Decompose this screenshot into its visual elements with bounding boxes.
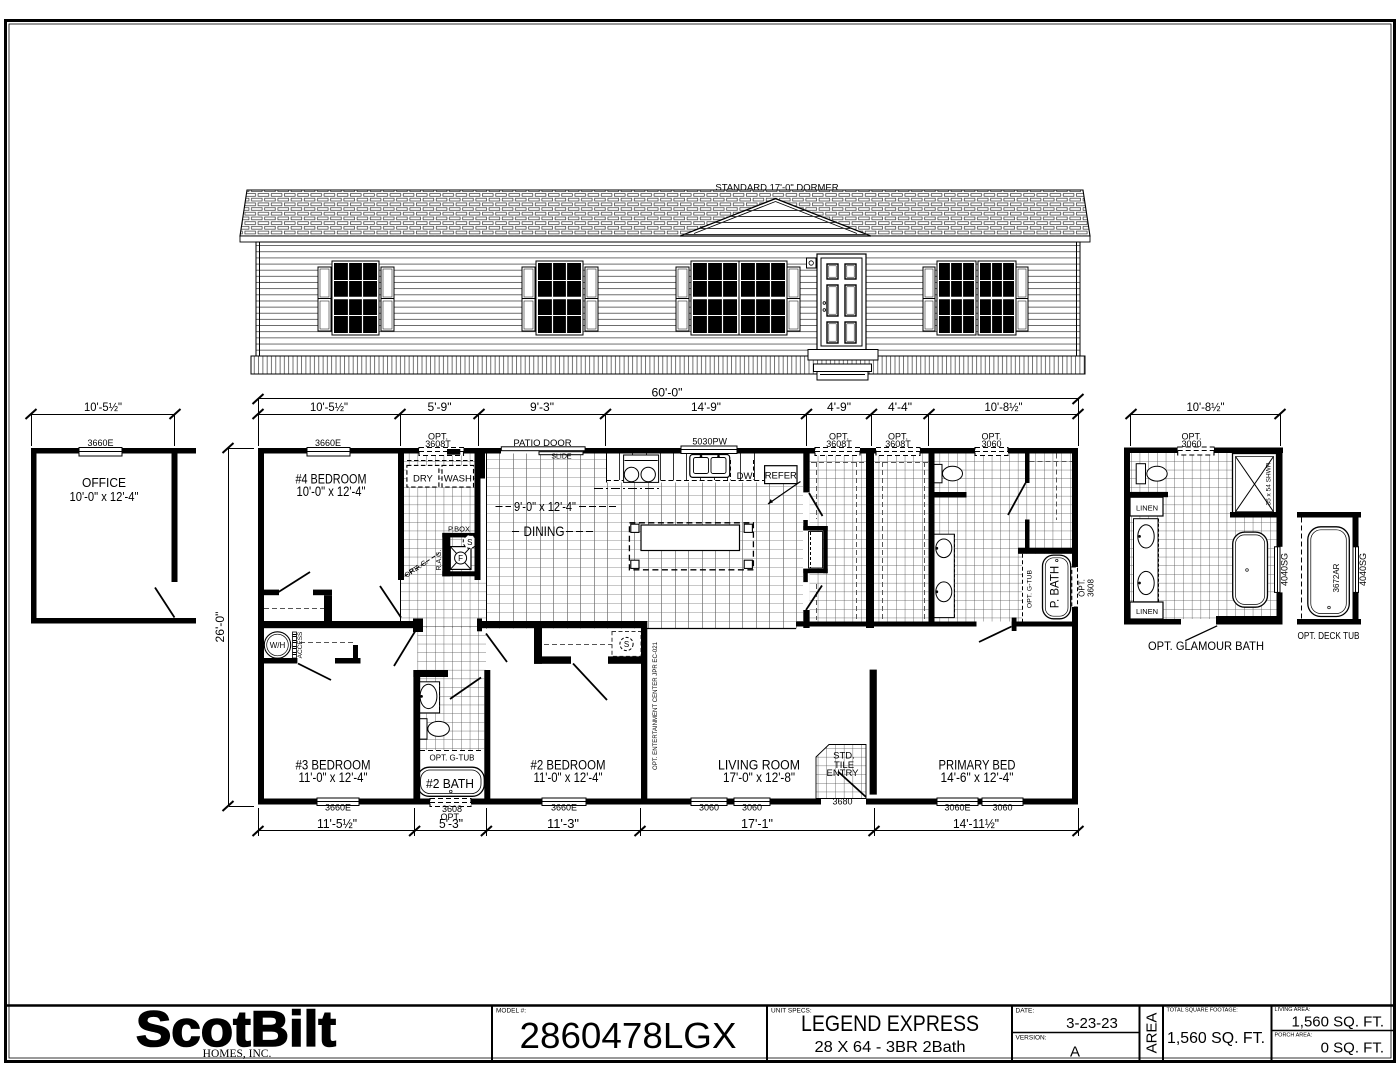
svg-text:ENTRY: ENTRY (826, 768, 859, 779)
svg-text:9'-0" x 12'-4": 9'-0" x 12'-4" (514, 499, 576, 514)
svg-text:LIVING AREA:: LIVING AREA: (1275, 1007, 1311, 1013)
svg-text:3672AR: 3672AR (1332, 563, 1341, 592)
svg-text:5030PW: 5030PW (692, 436, 727, 446)
svg-text:4'-9": 4'-9" (827, 400, 851, 414)
svg-text:HOMES, INC.: HOMES, INC. (203, 1048, 272, 1060)
svg-text:3060: 3060 (981, 439, 1001, 449)
svg-text:PORCH AREA:: PORCH AREA: (1275, 1033, 1313, 1039)
svg-text:5'-3": 5'-3" (439, 817, 463, 831)
svg-text:3060: 3060 (699, 803, 719, 813)
svg-text:10'-5½": 10'-5½" (84, 400, 122, 414)
svg-text:3608T: 3608T (425, 439, 451, 449)
svg-text:14'-11½": 14'-11½" (953, 817, 999, 831)
svg-text:SLIDE: SLIDE (551, 454, 572, 461)
svg-text:VERSION:: VERSION: (1016, 1035, 1047, 1042)
svg-text:3060: 3060 (742, 803, 762, 813)
svg-text:17'-1": 17'-1" (741, 817, 773, 831)
svg-text:3680: 3680 (832, 796, 852, 806)
svg-text:OFFICE: OFFICE (82, 475, 126, 490)
svg-text:11'-5½": 11'-5½" (317, 817, 357, 831)
svg-text:10'-8½": 10'-8½" (985, 400, 1023, 414)
svg-text:28 X 64 - 3BR 2Bath: 28 X 64 - 3BR 2Bath (815, 1039, 966, 1056)
svg-text:3608: 3608 (1087, 579, 1096, 597)
svg-text:17'-0" x 12'-8": 17'-0" x 12'-8" (723, 770, 795, 785)
svg-text:10'-0" x 12'-4": 10'-0" x 12'-4" (297, 484, 366, 499)
svg-text:A: A (1070, 1044, 1080, 1061)
svg-text:TOTAL SQUARE FOOTAGE:: TOTAL SQUARE FOOTAGE: (1167, 1008, 1239, 1014)
svg-text:LINEN: LINEN (1136, 504, 1158, 513)
svg-text:3060: 3060 (992, 803, 1012, 813)
svg-text:DW: DW (737, 471, 753, 482)
svg-text:MODEL #:: MODEL #: (496, 1008, 526, 1015)
svg-text:F: F (458, 554, 463, 563)
svg-text:LINEN: LINEN (1136, 607, 1158, 616)
svg-text:OPT. ENTERTAINMENT CENTER JPR: OPT. ENTERTAINMENT CENTER JPR EC-021 (652, 642, 659, 770)
svg-text:3660E: 3660E (87, 438, 113, 448)
svg-text:P. BATH: P. BATH (1050, 566, 1062, 608)
svg-text:11'-0" x 12'-4": 11'-0" x 12'-4" (534, 770, 603, 785)
svg-text:AREA: AREA (1144, 1013, 1161, 1054)
svg-text:5'-9": 5'-9" (428, 400, 452, 414)
svg-text:14'-9": 14'-9" (691, 400, 721, 414)
svg-text:3608T: 3608T (826, 439, 852, 449)
svg-text:LEGEND EXPRESS: LEGEND EXPRESS (801, 1011, 979, 1036)
svg-text:WASH: WASH (444, 474, 472, 485)
svg-text:DINING: DINING (524, 523, 565, 539)
svg-text:60'-0": 60'-0" (652, 386, 683, 400)
svg-text:OPT.: OPT. (1078, 579, 1087, 597)
svg-text:10'-8½": 10'-8½" (1187, 400, 1225, 414)
svg-text:3060E: 3060E (944, 803, 970, 813)
svg-text:OPT. G-TUB: OPT. G-TUB (1027, 569, 1034, 608)
svg-text:0 SQ. FT.: 0 SQ. FT. (1321, 1040, 1384, 1057)
svg-text:OPT. DECK TUB: OPT. DECK TUB (1298, 631, 1360, 642)
svg-text:3608T: 3608T (885, 439, 911, 449)
svg-text:DRY: DRY (413, 474, 434, 485)
svg-text:3060: 3060 (1181, 439, 1201, 449)
svg-text:4040SG: 4040SG (1280, 553, 1290, 586)
svg-text:S: S (624, 640, 629, 649)
svg-text:1,560 SQ. FT.: 1,560 SQ. FT. (1291, 1014, 1384, 1031)
svg-text:OPT. G-TUB: OPT. G-TUB (430, 754, 475, 763)
svg-text:10'-0" x 12'-4": 10'-0" x 12'-4" (70, 489, 139, 504)
svg-text:STANDARD 17'-0" DORMER: STANDARD 17'-0" DORMER (715, 183, 838, 194)
svg-text:3660E: 3660E (551, 803, 577, 813)
svg-text:9'-3": 9'-3" (530, 400, 554, 414)
svg-text:S: S (467, 538, 472, 547)
svg-text:3660E: 3660E (315, 438, 341, 448)
svg-text:R.A.G.: R.A.G. (436, 549, 443, 570)
svg-text:#2 BATH: #2 BATH (426, 777, 474, 791)
svg-text:3660E: 3660E (325, 803, 351, 813)
svg-text:PATIO DOOR: PATIO DOOR (513, 438, 571, 449)
svg-text:REFER: REFER (765, 471, 797, 482)
svg-text:W/H: W/H (270, 641, 286, 650)
svg-text:2860478LGX: 2860478LGX (520, 1015, 737, 1056)
svg-text:OPT. GLAMOUR BATH: OPT. GLAMOUR BATH (1148, 639, 1264, 653)
svg-text:4'-4": 4'-4" (888, 400, 912, 414)
svg-text:ACCESS: ACCESS (297, 631, 304, 658)
svg-text:4040SG: 4040SG (1358, 553, 1368, 586)
svg-text:10'-5½": 10'-5½" (310, 400, 348, 414)
svg-text:14'-6" x 12'-4": 14'-6" x 12'-4" (941, 770, 1014, 785)
svg-text:35 x 54 SHWR: 35 x 54 SHWR (1266, 462, 1273, 505)
svg-text:11'-0" x 12'-4": 11'-0" x 12'-4" (299, 770, 368, 785)
svg-text:3-23-23: 3-23-23 (1066, 1015, 1118, 1032)
svg-text:1,560 SQ. FT.: 1,560 SQ. FT. (1167, 1030, 1265, 1047)
svg-text:26'-0": 26'-0" (213, 612, 227, 643)
svg-text:DATE:: DATE: (1016, 1008, 1035, 1015)
svg-text:11'-3": 11'-3" (547, 817, 579, 831)
svg-text:P.BOX: P.BOX (448, 525, 470, 534)
